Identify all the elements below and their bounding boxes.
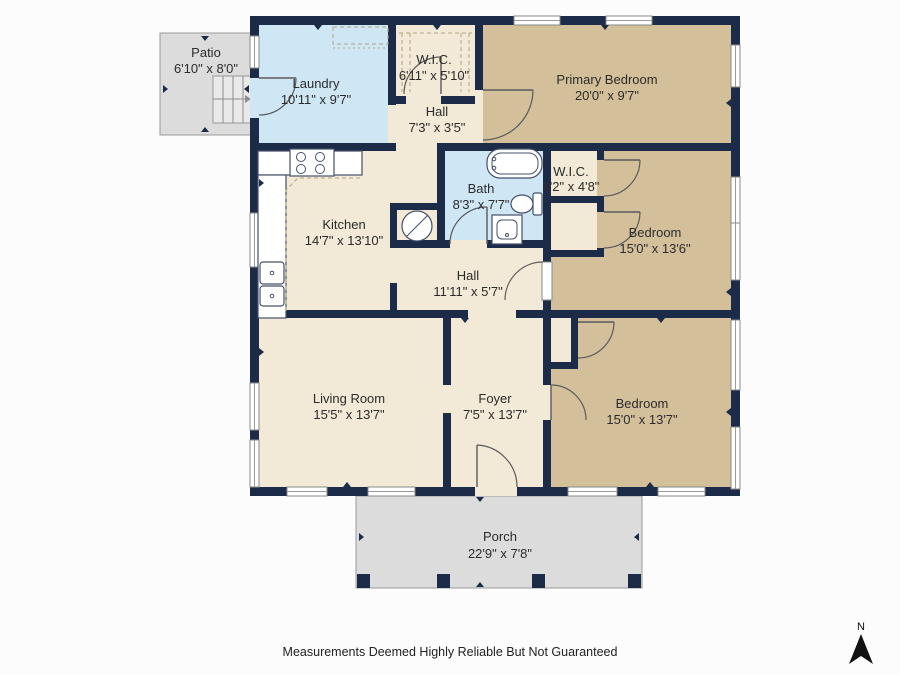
room-label-wic-top-name: W.I.C.	[416, 52, 451, 67]
room-label-bedroom-bottom-name: Bedroom	[616, 396, 669, 411]
room-label-patio-name: Patio	[191, 45, 221, 60]
porch-post	[437, 574, 450, 588]
stove	[290, 149, 334, 176]
room-label-hall-mid-dims: 11'11" x 5'7"	[433, 284, 503, 299]
window	[250, 440, 259, 487]
room-label-laundry-name: Laundry	[293, 76, 340, 91]
room-label-primary-bedroom-dims: 20'0" x 9'7"	[575, 88, 639, 103]
room-label-hall-mid-name: Hall	[457, 268, 480, 283]
room-label-porch-name: Porch	[483, 529, 517, 544]
window	[287, 487, 327, 496]
doorway-laundry	[250, 78, 259, 118]
room-label-kitchen-name: Kitchen	[322, 217, 365, 232]
room-label-living-room-name: Living Room	[313, 391, 385, 406]
room-label-bedroom-mid-name: Bedroom	[629, 225, 682, 240]
north-label: N	[857, 621, 865, 633]
room-label-kitchen-dims: 14'7" x 13'10"	[305, 233, 384, 248]
room-label-laundry-dims: 10'11" x 9'7"	[281, 92, 352, 107]
doorway-primary-bedroom	[475, 90, 483, 140]
disclaimer-text: Measurements Deemed Highly Reliable But …	[283, 645, 618, 659]
room-label-patio-dims: 6'10" x 8'0"	[174, 61, 238, 76]
doorway-front-entry	[475, 487, 517, 496]
north-arrow-icon: N	[849, 621, 873, 664]
window	[250, 36, 259, 68]
room-label-hall-top-name: Hall	[426, 104, 449, 119]
window	[658, 487, 705, 496]
room-label-bedroom-bottom-dims: 15'0" x 13'7"	[606, 412, 678, 427]
window	[731, 223, 740, 280]
room-label-wic-mid-dims: 4'2" x 4'8"	[543, 179, 600, 194]
porch-post	[532, 574, 545, 588]
window	[250, 383, 259, 430]
bathroom-sink	[492, 215, 522, 244]
window	[514, 16, 560, 25]
floor-plan: Patio 6'10" x 8'0" Laundry 10'11" x 9'7"…	[0, 0, 900, 675]
stairs	[213, 76, 252, 123]
porch-post	[628, 574, 641, 588]
window	[568, 487, 617, 496]
room-label-living-room-dims: 15'5" x 13'7"	[313, 407, 385, 422]
kitchen-sink	[260, 262, 284, 306]
window	[606, 16, 652, 25]
room-label-foyer-dims: 7'5" x 13'7"	[463, 407, 527, 422]
room-floor-bedroom-mid-entry	[551, 257, 597, 310]
room-label-bath-name: Bath	[468, 181, 495, 196]
window	[731, 177, 740, 223]
window	[368, 487, 415, 496]
porch-post	[357, 574, 370, 588]
room-floor-closet-bottom	[551, 318, 571, 362]
water-heater	[402, 211, 432, 241]
room-label-porch-dims: 22'9" x 7'8"	[468, 546, 532, 561]
toilet	[511, 193, 542, 215]
wall-exterior-top	[250, 16, 740, 25]
room-label-primary-bedroom-name: Primary Bedroom	[556, 72, 657, 87]
room-label-wic-mid-name: W.I.C.	[553, 164, 588, 179]
window	[731, 427, 740, 489]
window	[731, 45, 740, 87]
window	[731, 320, 740, 390]
room-label-bath-dims: 8'3" x 7'7"	[453, 197, 510, 212]
room-label-bedroom-mid-dims: 15'0" x 13'6"	[619, 241, 691, 256]
bathtub	[487, 149, 542, 178]
room-label-foyer-name: Foyer	[478, 391, 512, 406]
room-label-hall-top-dims: 7'3" x 3'5"	[409, 120, 466, 135]
room-label-wic-top-dims: 6'11" x 5'10"	[399, 68, 470, 83]
